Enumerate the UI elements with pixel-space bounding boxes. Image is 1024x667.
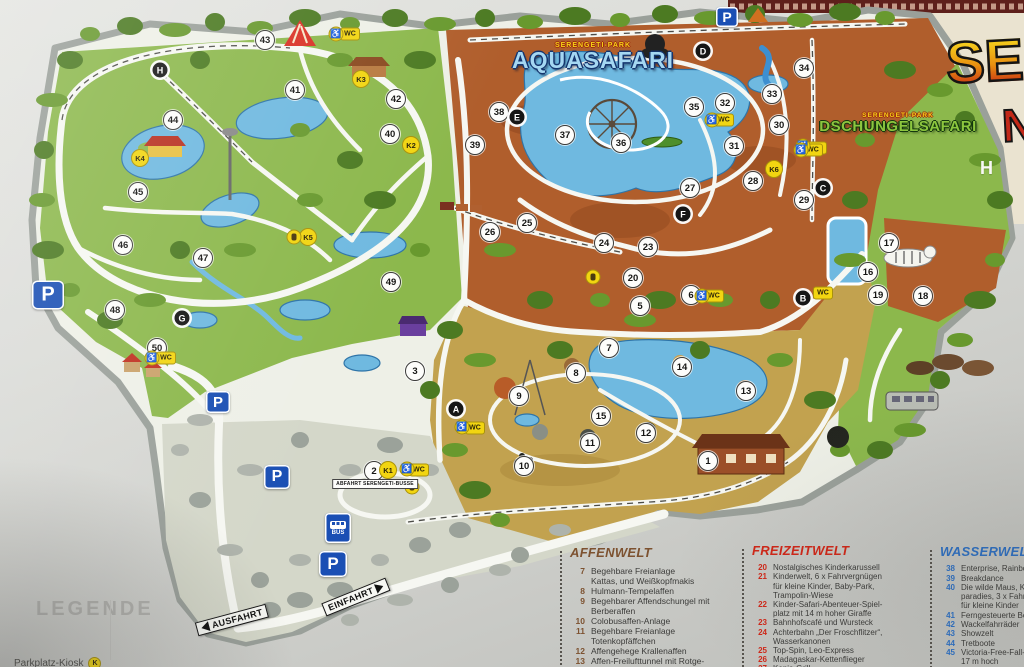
- parking-sign-4: P: [319, 551, 347, 577]
- legend-item-text: Begehbare FreianlageKattas, und Weißkopf…: [591, 566, 694, 586]
- legend-item-11: 11Begehbare FreianlageTotenkopfäffchen: [570, 626, 760, 646]
- station-marker-A: A: [449, 402, 464, 417]
- direction-sign-label: AUSFAHRT: [211, 607, 264, 630]
- legend-item-text: Kinder-Safari-Abenteuer-Spiel-platz mit …: [773, 600, 882, 618]
- legend-item-number: 13: [570, 656, 585, 666]
- legend-item-text: Achterbahn „Der Froschflitzer“,Wasserkan…: [773, 628, 882, 646]
- legend-section-title: WASSERWELT: [940, 547, 1024, 556]
- station-marker-E: E: [510, 110, 525, 125]
- legend-item-text: Bahnhofscafé und Wursteck: [773, 618, 873, 627]
- park-map-board: SERENGETI-PARK AQUASAFARI SERENGETI-PARK…: [0, 0, 1024, 667]
- legend-item-26: 26Madagaskar-Kettenflieger: [752, 655, 942, 664]
- poi-marker-24: 24: [594, 233, 614, 253]
- station-marker-C: C: [816, 181, 831, 196]
- wheelchair-icon-3: ♿: [794, 143, 809, 158]
- station-marker-F: F: [676, 207, 691, 222]
- kiosk-badge-K6: K6: [765, 160, 783, 178]
- legend-item-number: 24: [752, 628, 767, 637]
- station-marker-H: H: [153, 63, 168, 78]
- legend-item-40: 40Die wilde Maus, Kinparadies, 3 x Fahrg…: [940, 583, 1024, 611]
- legend-item-text: Madagaskar-Kettenflieger: [773, 655, 865, 664]
- poi-marker-28: 28: [743, 171, 763, 191]
- poi-marker-19: 19: [868, 285, 888, 305]
- legend-item-text: Ferngesteuerte Boo: [961, 611, 1024, 620]
- poi-marker-7: 7: [599, 338, 619, 358]
- poi-marker-8: 8: [566, 363, 586, 383]
- legend-item-text: Kinderwelt, 6 x Fahrvergnügenfür kleine …: [773, 572, 882, 600]
- poi-marker-10: 10: [514, 456, 534, 476]
- kiosk-badge-K5: K5: [299, 228, 317, 246]
- kiosk-badge: K: [88, 657, 101, 667]
- parking-sign-2: P: [264, 465, 290, 489]
- legend-item-13: 13Affen-Freilufttunnel mit Rotge-sichtsm…: [570, 656, 760, 667]
- legend-item-41: 41Ferngesteuerte Boo: [940, 611, 1024, 620]
- bus-icon: [330, 521, 346, 529]
- kiosk-badge-K1: K1: [379, 461, 397, 479]
- legend-item-text: Victoria-Free-Fall-Tow17 m hoch: [961, 648, 1024, 667]
- legend-item-text: Die wilde Maus, Kinparadies, 3 x Fahrgfü…: [961, 583, 1024, 611]
- legend-item-number: 11: [570, 626, 585, 636]
- legend-section-title: AFFENWELT: [570, 548, 760, 558]
- parking-sign-1: P: [206, 391, 230, 413]
- legend-item-text: Breakdance: [961, 574, 1004, 583]
- bus-departure-label: ABFAHRT SERENGETI-BUSSE: [332, 479, 418, 489]
- parkplatz-kiosk-label: Parkplatz-Kiosk: [14, 658, 83, 667]
- poi-marker-25: 25: [517, 213, 537, 233]
- legend-item-number: 39: [940, 574, 955, 583]
- legend-item-45: 45Victoria-Free-Fall-Tow17 m hoch: [940, 648, 1024, 667]
- parking-sign-0: P: [32, 281, 64, 310]
- legend-item-20: 20Nostalgisches Kinderkarussell: [752, 563, 942, 572]
- legend-item-number: 43: [940, 629, 955, 638]
- legend-item-number: 9: [570, 596, 585, 606]
- legend-item-number: 26: [752, 655, 767, 664]
- legend-item-number: 23: [752, 618, 767, 627]
- legend-item-43: 43Showzelt: [940, 629, 1024, 638]
- direction-sign-label: EINFAHRT: [327, 585, 375, 612]
- legend-item-22: 22Kinder-Safari-Abenteuer-Spiel-platz mi…: [752, 600, 942, 618]
- poi-marker-38: 38: [489, 102, 509, 122]
- legend-item-25: 25Top-Spin, Leo-Express: [752, 646, 942, 655]
- poi-marker-9: 9: [509, 386, 529, 406]
- wc-badge-4: WC: [813, 287, 833, 300]
- station-marker-G: G: [175, 311, 190, 326]
- legend-item-text: Begehbarer Affendschungel mitBerberaffen: [591, 596, 709, 616]
- legend-item-7: 7Begehbare FreianlageKattas, und Weißkop…: [570, 566, 760, 586]
- poi-marker-32: 32: [715, 93, 735, 113]
- poi-marker-18: 18: [913, 286, 933, 306]
- station-marker-B: B: [796, 291, 811, 306]
- legend-item-44: 44Tretboote: [940, 639, 1024, 648]
- kiosk-badge-K2: K2: [402, 136, 420, 154]
- legend-item-10: 10Colobusaffen-Anlage: [570, 616, 760, 626]
- legend-item-number: 22: [752, 600, 767, 609]
- wheelchair-icon-6: ♿: [145, 351, 160, 366]
- legend-item-number: 12: [570, 646, 585, 656]
- poi-marker-17: 17: [879, 233, 899, 253]
- legend-item-number: 25: [752, 646, 767, 655]
- poi-marker-13: 13: [736, 381, 756, 401]
- misc-badge-0: [287, 230, 302, 245]
- poi-marker-3: 3: [405, 361, 425, 381]
- legend-item-number: 10: [570, 616, 585, 626]
- poi-marker-31: 31: [724, 136, 744, 156]
- legend-item-text: Enterprise, Rainbo: [961, 564, 1024, 573]
- legend-item-23: 23Bahnhofscafé und Wursteck: [752, 618, 942, 627]
- legend-item-21: 21Kinderwelt, 6 x Fahrvergnügenfür klein…: [752, 572, 942, 600]
- poi-marker-16: 16: [858, 262, 878, 282]
- legend-section-wasserwelt: WASSERWELT38Enterprise, Rainbo39Breakdan…: [940, 547, 1024, 667]
- poi-marker-44: 44: [163, 110, 183, 130]
- direction-sign-einfahrt: EINFAHRT: [321, 578, 390, 617]
- legend-item-text: Affengehege Krallenaffen: [591, 646, 687, 656]
- poi-marker-20: 20: [623, 268, 643, 288]
- poi-marker-34: 34: [794, 58, 814, 78]
- poi-marker-35: 35: [684, 97, 704, 117]
- direction-sign-ausfahrt: AUSFAHRT: [195, 604, 269, 636]
- kiosk-badge-K4: K4: [131, 149, 149, 167]
- poi-marker-26: 26: [480, 222, 500, 242]
- legend-item-text: Nostalgisches Kinderkarussell: [773, 563, 880, 572]
- poi-marker-1: 1: [698, 451, 718, 471]
- direction-arrow-icon: [200, 621, 210, 633]
- legend-item-number: 21: [752, 572, 767, 581]
- poi-marker-40: 40: [380, 124, 400, 144]
- legend-item-text: Colobusaffen-Anlage: [591, 616, 670, 626]
- legend-item-9: 9Begehbarer Affendschungel mitBerberaffe…: [570, 596, 760, 616]
- legend-item-number: 7: [570, 566, 585, 576]
- poi-marker-42: 42: [386, 89, 406, 109]
- poi-marker-5: 5: [630, 296, 650, 316]
- poi-marker-11: 11: [580, 433, 600, 453]
- legend-item-12: 12Affengehege Krallenaffen: [570, 646, 760, 656]
- bus-sign-label: BUS: [332, 530, 345, 536]
- poi-marker-37: 37: [555, 125, 575, 145]
- poi-marker-33: 33: [762, 84, 782, 104]
- legend-item-text: Begehbare FreianlageTotenkopfäffchen: [591, 626, 675, 646]
- direction-arrow-icon: [374, 581, 385, 593]
- poi-marker-29: 29: [794, 190, 814, 210]
- legend-item-number: 38: [940, 564, 955, 573]
- bus-stop-sign: BUS: [325, 513, 351, 543]
- poi-marker-45: 45: [128, 182, 148, 202]
- legende-heading: LEGENDE: [36, 598, 154, 621]
- misc-badge-1: [586, 270, 601, 285]
- legend-item-number: 41: [940, 611, 955, 620]
- legend-divider: [110, 600, 111, 660]
- poi-marker-36: 36: [611, 133, 631, 153]
- legend-item-text: Wackelfahrräder: [961, 620, 1019, 629]
- poi-marker-12: 12: [636, 423, 656, 443]
- legend-item-number: 42: [940, 620, 955, 629]
- poi-marker-43: 43: [255, 30, 275, 50]
- poi-marker-41: 41: [285, 80, 305, 100]
- station-marker-D: D: [696, 44, 711, 59]
- poi-marker-46: 46: [113, 235, 133, 255]
- legend-item-number: 40: [940, 583, 955, 592]
- legend-item-text: Affen-Freilufttunnel mit Rotge-sichtsmak…: [591, 656, 707, 667]
- legend-item-42: 42Wackelfahrräder: [940, 620, 1024, 629]
- parking-sign-3: P: [716, 7, 738, 27]
- poi-marker-15: 15: [591, 406, 611, 426]
- wheelchair-icon-2: ♿: [705, 113, 720, 128]
- legend-item-38: 38Enterprise, Rainbo: [940, 564, 1024, 573]
- poi-marker-47: 47: [193, 248, 213, 268]
- legend-item-number: 8: [570, 586, 585, 596]
- legend-item-39: 39Breakdance: [940, 574, 1024, 583]
- poi-marker-27: 27: [680, 178, 700, 198]
- legend-section-title: FREIZEITWELT: [752, 546, 942, 555]
- poi-marker-30: 30: [769, 115, 789, 135]
- poi-marker-23: 23: [638, 237, 658, 257]
- wheelchair-icon-5: ♿: [455, 420, 470, 435]
- poi-marker-14: 14: [672, 357, 692, 377]
- legend-item-text: Tretboote: [961, 639, 995, 648]
- wheelchair-icon-7: ♿: [400, 462, 415, 477]
- poi-marker-49: 49: [381, 272, 401, 292]
- legend-section-affenwelt: AFFENWELT7Begehbare FreianlageKattas, un…: [570, 548, 760, 667]
- legend-section-freizeitwelt: FREIZEITWELT20Nostalgisches Kinderkaruss…: [752, 546, 942, 667]
- legend-item-24: 24Achterbahn „Der Froschflitzer“,Wasserk…: [752, 628, 942, 646]
- parkplatz-kiosk-entry: Parkplatz-Kiosk K: [14, 657, 101, 667]
- legend-item-number: 45: [940, 648, 955, 657]
- poi-marker-48: 48: [105, 300, 125, 320]
- wheelchair-icon-4: ♿: [695, 289, 710, 304]
- legend-item-text: Top-Spin, Leo-Express: [773, 646, 854, 655]
- poi-marker-39: 39: [465, 135, 485, 155]
- legend-item-number: 44: [940, 639, 955, 648]
- kiosk-badge-K3: K3: [352, 70, 370, 88]
- legend-item-8: 8Hulmann-Tempelaffen: [570, 586, 760, 596]
- wheelchair-icon-0: ♿: [329, 27, 344, 42]
- legend-item-text: Hulmann-Tempelaffen: [591, 586, 674, 596]
- legend-item-number: 20: [752, 563, 767, 572]
- legend-item-text: Showzelt: [961, 629, 993, 638]
